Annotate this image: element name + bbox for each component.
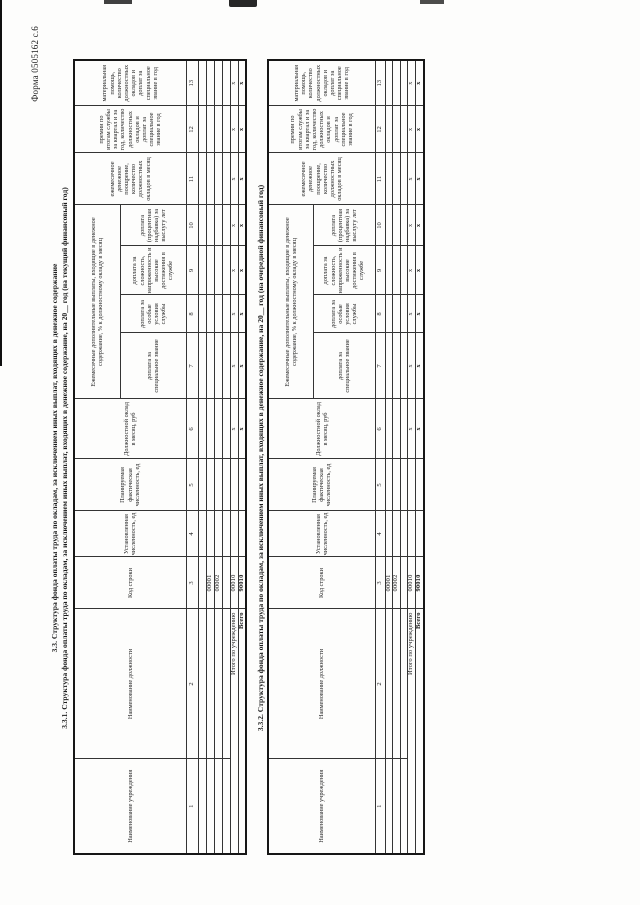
- table-row: 12345678910111213: [375, 60, 385, 854]
- empty-cell: [393, 759, 401, 854]
- column-number-cell: 12: [186, 106, 198, 153]
- empty-cell: [198, 106, 206, 153]
- x-mark-cell: х: [230, 153, 238, 205]
- header-cell: Наименование должности: [74, 609, 186, 759]
- header-cell: доплата (процентная надбавка) за выслугу…: [313, 205, 375, 246]
- empty-cell: [385, 60, 393, 106]
- empty-cell: [385, 759, 393, 854]
- empty-cell: [214, 511, 222, 557]
- header-cell: премии по итогам службы за квартал и за …: [74, 106, 186, 153]
- table-row: 00002: [393, 60, 401, 854]
- empty-cell: [393, 511, 401, 557]
- empty-cell: [206, 205, 214, 246]
- header-cell: доплата (процентная надбавка) за выслугу…: [120, 205, 186, 246]
- empty-cell: [206, 333, 214, 399]
- table-row: [222, 60, 230, 854]
- column-number-cell: 6: [186, 399, 198, 459]
- row-code-cell: 00002: [214, 557, 222, 609]
- header-cell: Планируемая фактическая численность, ед: [268, 459, 375, 511]
- empty-cell: [206, 459, 214, 511]
- table-row: Всего90010хххххххх: [238, 60, 246, 854]
- empty-cell: [393, 295, 401, 333]
- total-label-cell: Итого по учреждению: [230, 609, 238, 854]
- table-row: Итого по учреждению00010хххххххх: [230, 60, 238, 854]
- empty-cell: [206, 106, 214, 153]
- empty-cell: [198, 205, 206, 246]
- row-code-cell: 90010: [238, 557, 246, 609]
- x-mark-cell: х: [230, 295, 238, 333]
- empty-cell: [393, 153, 401, 205]
- column-number-cell: 11: [186, 153, 198, 205]
- empty-cell: [198, 399, 206, 459]
- table-1-title: 3.3.1. Структура фонда оплаты труда по о…: [60, 61, 69, 855]
- empty-cell: [401, 153, 408, 205]
- column-number-cell: 5: [375, 459, 385, 511]
- empty-cell: [198, 609, 206, 759]
- x-mark-cell: х: [238, 295, 246, 333]
- table-row: 00001: [385, 60, 393, 854]
- row-code-cell: 90010: [415, 557, 423, 609]
- x-mark-cell: х: [238, 399, 246, 459]
- empty-cell: [230, 459, 238, 511]
- column-number-cell: 10: [375, 205, 385, 246]
- column-number-cell: 13: [186, 60, 198, 106]
- x-mark-cell: х: [230, 205, 238, 246]
- x-mark-cell: х: [238, 205, 246, 246]
- empty-cell: [198, 60, 206, 106]
- empty-cell: [408, 511, 416, 557]
- header-cell: Установленная численность, ед: [74, 511, 186, 557]
- header-cell: Наименование должности: [268, 609, 375, 759]
- form-reference: Форма 0505162 с.6: [30, 26, 40, 102]
- header-cell: Код строки: [74, 557, 186, 609]
- table-row: Наименование учрежденияНаименование долж…: [268, 60, 313, 854]
- empty-cell: [198, 557, 206, 609]
- x-mark-cell: х: [230, 246, 238, 295]
- column-number-cell: 4: [186, 511, 198, 557]
- x-mark-cell: х: [415, 333, 423, 399]
- empty-cell: [214, 106, 222, 153]
- x-mark-cell: х: [415, 399, 423, 459]
- scan-artifact-smudge: [420, 0, 444, 4]
- empty-cell: [214, 399, 222, 459]
- empty-cell: [393, 609, 401, 759]
- empty-cell: [214, 609, 222, 759]
- empty-cell: [222, 459, 230, 511]
- empty-cell: [206, 759, 214, 854]
- empty-cell: [393, 60, 401, 106]
- empty-cell: [238, 511, 246, 557]
- column-number-cell: 8: [186, 295, 198, 333]
- empty-cell: [206, 511, 214, 557]
- empty-cell: [206, 609, 214, 759]
- empty-cell: [198, 333, 206, 399]
- empty-cell: [198, 459, 206, 511]
- table-2-title: 3.3.2. Структура фонда оплаты труда по о…: [256, 61, 265, 855]
- header-cell: Установленная численность, ед: [268, 511, 375, 557]
- row-code-cell: 00002: [393, 557, 401, 609]
- x-mark-cell: х: [408, 399, 416, 459]
- empty-cell: [401, 106, 408, 153]
- empty-cell: [385, 333, 393, 399]
- empty-cell: [206, 246, 214, 295]
- empty-cell: [393, 399, 401, 459]
- header-cell: Код строки: [268, 557, 375, 609]
- empty-cell: [401, 459, 408, 511]
- header-cell: доплата за сложность, напряженность и вы…: [313, 246, 375, 295]
- table-row: [401, 60, 408, 854]
- scan-artifact-left-edge: [0, 0, 2, 366]
- column-number-cell: 13: [375, 60, 385, 106]
- row-code-cell: 00001: [206, 557, 214, 609]
- empty-cell: [393, 333, 401, 399]
- empty-cell: [206, 399, 214, 459]
- empty-cell: [401, 333, 408, 399]
- empty-cell: [214, 759, 222, 854]
- empty-cell: [401, 295, 408, 333]
- empty-cell: [198, 153, 206, 205]
- empty-cell: [393, 205, 401, 246]
- x-mark-cell: х: [230, 333, 238, 399]
- table-row: Всего90010хххххххх: [415, 60, 423, 854]
- table-row: [198, 60, 206, 854]
- empty-cell: [222, 557, 230, 609]
- empty-cell: [401, 246, 408, 295]
- section-heading: 3.3. Структура фонда оплаты труда по окл…: [50, 61, 59, 855]
- row-code-cell: 00010: [230, 557, 238, 609]
- header-cell: ежемесячное денежное поощрение, количест…: [268, 153, 375, 205]
- column-number-cell: 5: [186, 459, 198, 511]
- column-number-cell: 10: [186, 205, 198, 246]
- x-mark-cell: х: [408, 246, 416, 295]
- x-mark-cell: х: [230, 399, 238, 459]
- column-number-cell: 4: [375, 511, 385, 557]
- pay-structure-table-2: Наименование учрежденияНаименование долж…: [267, 59, 425, 855]
- total-label-cell: Итого по учреждению: [408, 609, 416, 854]
- x-mark-cell: х: [408, 153, 416, 205]
- column-number-cell: 12: [375, 106, 385, 153]
- empty-cell: [214, 246, 222, 295]
- group-header-cell: Ежемесячные дополнительные выплаты, вход…: [268, 205, 313, 399]
- table-1-container: Наименование учрежденияНаименование долж…: [73, 59, 247, 855]
- empty-cell: [222, 511, 230, 557]
- scanned-form-page: Форма 0505162 с.6 3.3. Структура фонда о…: [0, 0, 640, 905]
- column-number-cell: 7: [186, 333, 198, 399]
- table-row: 12345678910111213: [186, 60, 198, 854]
- table-row: 00001: [206, 60, 214, 854]
- x-mark-cell: х: [238, 333, 246, 399]
- empty-cell: [401, 557, 408, 609]
- empty-cell: [214, 333, 222, 399]
- x-mark-cell: х: [415, 246, 423, 295]
- x-mark-cell: х: [408, 205, 416, 246]
- empty-cell: [385, 106, 393, 153]
- column-number-cell: 7: [375, 333, 385, 399]
- column-number-cell: 8: [375, 295, 385, 333]
- table-2-container: Наименование учрежденияНаименование долж…: [267, 59, 425, 855]
- x-mark-cell: х: [415, 205, 423, 246]
- table-row: 00002: [214, 60, 222, 854]
- empty-cell: [214, 153, 222, 205]
- row-code-cell: 00010: [408, 557, 416, 609]
- empty-cell: [385, 205, 393, 246]
- column-number-cell: 6: [375, 399, 385, 459]
- empty-cell: [393, 459, 401, 511]
- empty-cell: [401, 511, 408, 557]
- header-cell: ежемесячное денежное поощрение, количест…: [74, 153, 186, 205]
- empty-cell: [238, 459, 246, 511]
- x-mark-cell: х: [230, 106, 238, 153]
- header-cell: материальная помощь, количество должност…: [74, 60, 186, 106]
- empty-cell: [222, 295, 230, 333]
- empty-cell: [385, 459, 393, 511]
- empty-cell: [198, 246, 206, 295]
- header-cell: материальная помощь, количество должност…: [268, 60, 375, 106]
- empty-cell: [214, 295, 222, 333]
- empty-cell: [198, 511, 206, 557]
- empty-cell: [393, 106, 401, 153]
- column-number-cell: 3: [186, 557, 198, 609]
- empty-cell: [214, 459, 222, 511]
- header-cell: Должностной оклад в месяц, руб: [268, 399, 375, 459]
- empty-cell: [214, 60, 222, 106]
- total-label-cell: Всего: [238, 609, 246, 854]
- empty-cell: [222, 60, 230, 106]
- header-cell: премии по итогам службы за квартал и за …: [268, 106, 375, 153]
- x-mark-cell: х: [238, 153, 246, 205]
- x-mark-cell: х: [415, 60, 423, 106]
- empty-cell: [198, 295, 206, 333]
- empty-cell: [385, 511, 393, 557]
- column-number-cell: 11: [375, 153, 385, 205]
- x-mark-cell: х: [238, 246, 246, 295]
- column-number-cell: 2: [186, 609, 198, 759]
- column-number-cell: 3: [375, 557, 385, 609]
- empty-cell: [214, 205, 222, 246]
- header-cell: доплата за сложность, напряженность и вы…: [120, 246, 186, 295]
- table-row: Итого по учреждению00010хххххххх: [408, 60, 416, 854]
- empty-cell: [385, 246, 393, 295]
- x-mark-cell: х: [408, 295, 416, 333]
- header-cell: Планируемая фактическая численность, ед: [74, 459, 186, 511]
- empty-cell: [415, 511, 423, 557]
- empty-cell: [222, 333, 230, 399]
- column-number-cell: 9: [186, 246, 198, 295]
- empty-cell: [401, 60, 408, 106]
- column-number-cell: 2: [375, 609, 385, 759]
- empty-cell: [408, 459, 416, 511]
- empty-cell: [230, 511, 238, 557]
- empty-cell: [222, 609, 230, 759]
- x-mark-cell: х: [238, 106, 246, 153]
- column-number-cell: 9: [375, 246, 385, 295]
- table-row: Наименование учрежденияНаименование долж…: [74, 60, 120, 854]
- x-mark-cell: х: [408, 60, 416, 106]
- x-mark-cell: х: [408, 333, 416, 399]
- x-mark-cell: х: [238, 60, 246, 106]
- scan-artifact-smudge: [229, 0, 257, 7]
- empty-cell: [206, 153, 214, 205]
- empty-cell: [198, 759, 206, 854]
- empty-cell: [222, 153, 230, 205]
- empty-cell: [385, 153, 393, 205]
- empty-cell: [222, 759, 230, 854]
- empty-cell: [222, 106, 230, 153]
- total-label-cell: Всего: [415, 609, 423, 854]
- empty-cell: [385, 399, 393, 459]
- x-mark-cell: х: [230, 60, 238, 106]
- empty-cell: [222, 246, 230, 295]
- pay-structure-table-1: Наименование учрежденияНаименование долж…: [73, 59, 247, 855]
- header-cell: доплата за особые условия службы: [313, 295, 375, 333]
- empty-cell: [206, 295, 214, 333]
- header-cell: доплата за специальное звание: [313, 333, 375, 399]
- x-mark-cell: х: [415, 106, 423, 153]
- x-mark-cell: х: [415, 153, 423, 205]
- scan-artifact-smudge: [104, 0, 132, 4]
- header-cell: Наименование учреждения: [74, 759, 186, 854]
- empty-cell: [401, 759, 408, 854]
- empty-cell: [385, 295, 393, 333]
- x-mark-cell: х: [415, 295, 423, 333]
- empty-cell: [393, 246, 401, 295]
- empty-cell: [222, 205, 230, 246]
- empty-cell: [385, 609, 393, 759]
- empty-cell: [401, 399, 408, 459]
- column-number-cell: 1: [186, 759, 198, 854]
- rotated-landscape-page: Форма 0505162 с.6 3.3. Структура фонда о…: [0, 0, 640, 905]
- row-code-cell: 00001: [385, 557, 393, 609]
- empty-cell: [401, 205, 408, 246]
- header-cell: Наименование учреждения: [268, 759, 375, 854]
- header-cell: Должностной оклад в месяц, руб: [74, 399, 186, 459]
- header-cell: доплата за особые условия службы: [120, 295, 186, 333]
- header-cell: доплата за специальное звание: [120, 333, 186, 399]
- empty-cell: [401, 609, 408, 759]
- x-mark-cell: х: [408, 106, 416, 153]
- empty-cell: [206, 60, 214, 106]
- column-number-cell: 1: [375, 759, 385, 854]
- group-header-cell: Ежемесячные дополнительные выплаты, вход…: [74, 205, 120, 399]
- empty-cell: [415, 459, 423, 511]
- empty-cell: [222, 399, 230, 459]
